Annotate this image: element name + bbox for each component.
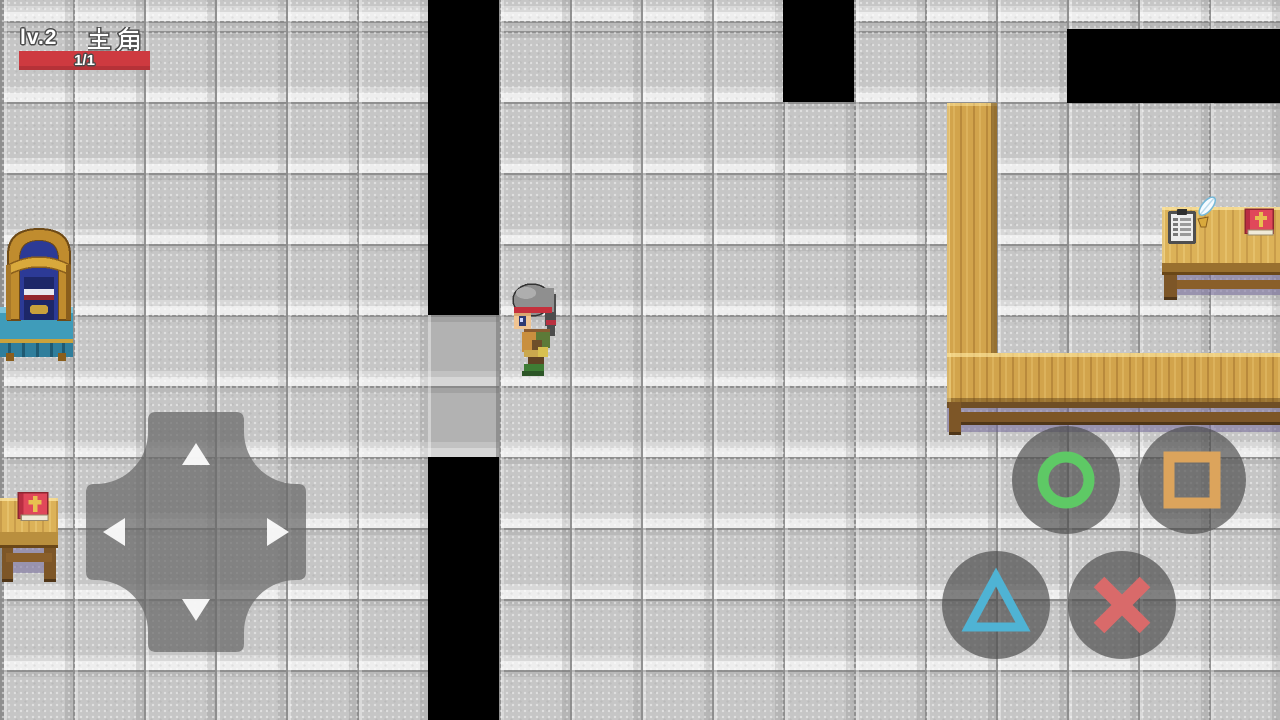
square-glyph-icon bbox=[1169, 457, 1215, 503]
circle-button[interactable] bbox=[1012, 426, 1120, 534]
cross-button[interactable] bbox=[1068, 551, 1176, 659]
quill-icon bbox=[1190, 194, 1218, 230]
void-top-column bbox=[783, 0, 854, 102]
dpad[interactable] bbox=[82, 406, 310, 654]
bible-icon bbox=[17, 489, 49, 523]
counter-leg bbox=[949, 402, 961, 435]
desk-stretcher bbox=[1177, 280, 1280, 289]
game-viewport: lv.2 主角 1/1 bbox=[0, 0, 1280, 720]
desk-edge bbox=[1162, 263, 1280, 275]
square-button[interactable] bbox=[1138, 426, 1246, 534]
counter-stretcher bbox=[952, 412, 1280, 425]
void-top-right bbox=[1067, 29, 1280, 103]
counter-horizontal bbox=[947, 353, 1280, 402]
triangle-button[interactable] bbox=[942, 551, 1050, 659]
hud-level-label: lv.2 bbox=[20, 26, 57, 50]
counter-vertical bbox=[947, 103, 997, 355]
left-table-edge bbox=[0, 532, 58, 548]
void-corridor-top bbox=[428, 0, 499, 315]
cross-glyph-icon bbox=[1099, 582, 1145, 628]
hero-sprite bbox=[512, 280, 562, 380]
canopy-bed bbox=[0, 225, 76, 361]
triangle-glyph-icon bbox=[969, 577, 1023, 627]
hp-bar: 1/1 bbox=[19, 51, 150, 70]
bible-icon bbox=[1244, 206, 1274, 237]
hud-player-name-glyphs bbox=[88, 27, 144, 53]
left-table-stretcher bbox=[6, 553, 52, 562]
doorway-tiles bbox=[428, 315, 499, 457]
circle-glyph-icon bbox=[1043, 457, 1089, 503]
desk-leg bbox=[1164, 275, 1177, 300]
hp-value: 1/1 bbox=[19, 52, 150, 69]
void-corridor-bottom bbox=[428, 457, 499, 720]
